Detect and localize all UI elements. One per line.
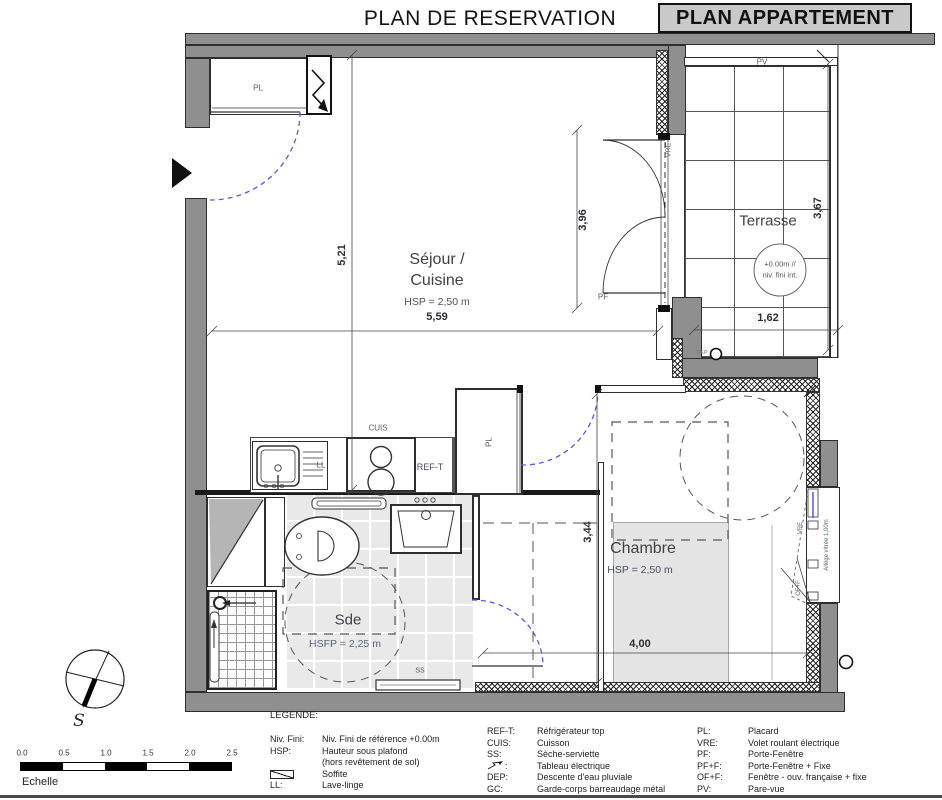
- sejour-label-2: Cuisine: [410, 272, 463, 290]
- chambre-hsp: HSP = 2,50 m: [607, 564, 672, 576]
- ref-t-label: REF-T: [417, 462, 444, 472]
- legend-col3: PL:Placard VRE:Volet roulant électrique …: [697, 726, 867, 795]
- hatch-right-upper: [806, 392, 820, 487]
- wall-right-upper: [820, 440, 838, 487]
- legend-title: LEGENDE:: [270, 710, 318, 721]
- dep-circle-right: [840, 656, 853, 669]
- tableau-electrique-symbol: [487, 761, 505, 771]
- scale-label: Echelle: [22, 776, 58, 788]
- dim-chambre-w: 4,00: [629, 638, 650, 650]
- allege-label: Allège vitrée 1,00m: [824, 519, 830, 570]
- plan-appartement-badge: PLAN APPARTEMENT: [658, 3, 912, 33]
- dim-chambre-h: 3,44: [582, 521, 594, 542]
- compass-south-label: S: [73, 711, 85, 731]
- scale-tick-3: 1.5: [142, 749, 153, 758]
- sde-door: [472, 600, 543, 666]
- chambre-label: Chambre: [610, 540, 676, 558]
- soffite-symbol: [270, 770, 294, 779]
- hatch-bottom: [475, 682, 820, 692]
- pf-sill: [656, 308, 672, 360]
- ss-label: SS: [415, 668, 424, 675]
- of-f-label: OF+F: [796, 580, 802, 596]
- ll-label: LL: [317, 461, 326, 470]
- scale-bar-segments: [20, 762, 232, 771]
- wall-top-band: [185, 33, 935, 45]
- level-line1: +0.00m //: [764, 260, 795, 269]
- vasque-unit: [390, 504, 462, 554]
- hatch-terrasse-left: [672, 338, 683, 378]
- page-title: PLAN DE RESERVATION: [364, 7, 616, 31]
- electrical-panel: [306, 55, 332, 115]
- compass-rose: [66, 650, 124, 708]
- sejour-label-1: Séjour /: [409, 251, 464, 269]
- dim-sejour-w: 5,59: [426, 311, 447, 323]
- wall-right-lower: [820, 603, 838, 703]
- dim-terrasse-h: 3,67: [812, 197, 824, 218]
- level-line2: niv. fini int.: [763, 271, 798, 280]
- wall-chambre-top-thin: [598, 385, 686, 393]
- terrasse-label: Terrasse: [739, 213, 797, 230]
- entry-closet-label: PL: [253, 84, 263, 93]
- scale-tick-0: 0.0: [16, 749, 27, 758]
- dim-sejour-h: 5,21: [336, 244, 348, 265]
- bottom-rule: [0, 795, 942, 798]
- cooktop-unit: [346, 437, 416, 492]
- wall-left-upper: [185, 58, 210, 128]
- wall-sde-right: [472, 495, 480, 600]
- pf-label: PF: [598, 293, 608, 302]
- scale-tick-2: 1.0: [100, 749, 111, 758]
- scale-tick-5: 2.5: [226, 749, 237, 758]
- legend: LEGENDE: Niv. Fini:Niv. Fini de référenc…: [268, 710, 942, 795]
- pf-double-door: [603, 133, 670, 312]
- scale-tick-1: 0.5: [58, 749, 69, 758]
- vre-right-label: VRE: [798, 522, 804, 534]
- shower-floor: [207, 590, 277, 690]
- scale-bar: 0.0 0.5 1.0 1.5 2.0 2.5 Echelle: [20, 745, 232, 790]
- legend-col2: REF-T:Réfrigérateur top CUIS:Cuisson SS:…: [487, 726, 665, 795]
- terrasse-right-band: [830, 66, 838, 358]
- sde-hsfp: HSFP = 2,25 m: [309, 638, 381, 650]
- floor-plan-sheet: PLAN DE RESERVATION PLAN APPARTEMENT: [0, 0, 942, 800]
- dep-terrasse-label: DEP: [696, 350, 707, 356]
- sejour-hsp: HSP = 2,50 m: [404, 296, 469, 308]
- cuis-label: CUIS: [368, 424, 387, 433]
- hatch-right-lower: [806, 603, 820, 690]
- wall-terrasse-corner-h: [672, 358, 818, 378]
- chambre-door-arc: [521, 392, 598, 465]
- hatch-chambre-top: [683, 378, 820, 392]
- wall-bottom-band: [185, 692, 845, 712]
- sde-label: Sde: [335, 612, 362, 629]
- badge-label: PLAN APPARTEMENT: [676, 7, 894, 30]
- hatch-divider: [656, 50, 668, 135]
- vre-pf-label: VRE: [666, 143, 673, 157]
- dim-pf-h: 3,96: [577, 209, 589, 230]
- dim-terrasse-w: 1,62: [757, 312, 778, 324]
- wall-sejour-top: [185, 45, 686, 58]
- kitchen-closet-label: PL: [485, 437, 494, 447]
- window-right-box: [806, 487, 840, 603]
- sde-door-slot: [265, 497, 285, 587]
- wall-left-main: [185, 198, 207, 692]
- wall-partition-hall: [598, 462, 604, 692]
- legend-col1: Niv. Fini:Niv. Fini de référence +0.00m …: [270, 734, 440, 792]
- turning-circle-chambre: [680, 396, 804, 520]
- pv-label: PV: [757, 58, 768, 67]
- scale-tick-4: 2.0: [184, 749, 195, 758]
- soffite-box: [207, 497, 265, 587]
